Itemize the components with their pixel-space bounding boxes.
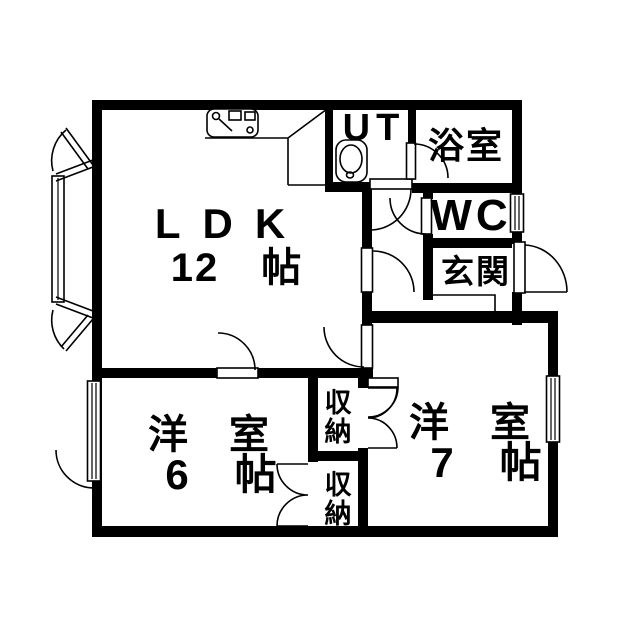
western7-door-leaf	[368, 378, 398, 387]
kitchen-counter	[205, 109, 333, 185]
storage-upper-double-doors	[368, 388, 397, 448]
storage-lower-double-doors	[277, 464, 308, 526]
western7-size-label: 7 帖	[430, 439, 543, 486]
western7-window	[547, 376, 560, 442]
entrance-label: 玄関	[441, 253, 511, 290]
bath-door-leaf	[407, 143, 416, 179]
wall-ldk-bottom-a	[92, 368, 217, 378]
bay-top-door-leaf	[61, 128, 93, 169]
wall-right-upper-a	[512, 100, 522, 195]
svg-text:納: 納	[325, 416, 352, 447]
western6-door-arc	[218, 333, 255, 370]
ut-door-arc	[370, 189, 411, 230]
svg-text:納: 納	[325, 498, 352, 529]
wall-storage-right-a	[358, 378, 368, 388]
ut-label: UT	[343, 107, 406, 149]
ldk-nook-door-leaf	[362, 325, 373, 368]
floor-plan: LDK 12 帖 UT 浴室 WC 玄関 洋 室 6 帖 洋 室 7 帖 収 納…	[0, 0, 640, 639]
entrance-door-leaf	[514, 242, 525, 293]
storage-upper-label: 収 納	[325, 388, 353, 447]
ldk-size-label: 12 帖	[171, 246, 304, 290]
ldk-hall-door-leaf	[362, 248, 373, 292]
wall-storage-left	[308, 378, 318, 462]
ldk-bay-window	[52, 128, 93, 351]
wall-ut-bath	[408, 108, 416, 145]
genkan-step-line	[433, 295, 495, 311]
storage-lower-label: 収 納	[325, 470, 353, 529]
wall-storage-divider	[318, 451, 358, 461]
ldk-nook-door-arc	[324, 327, 364, 367]
wc-window	[511, 194, 524, 232]
wall-hall-left-a	[362, 188, 372, 248]
wall-storage-top	[308, 368, 373, 378]
wall-hall-genkan-bottom	[363, 311, 558, 323]
wall-hall-left-b	[362, 292, 372, 325]
wall-ldk-ut	[325, 108, 333, 185]
entrance-door-arc	[524, 245, 567, 292]
bay-bottom-door-leaf	[61, 315, 93, 351]
wc-label: WC	[430, 191, 511, 240]
wall-top	[92, 100, 522, 110]
bath-label: 浴室	[428, 125, 504, 166]
bay-bottom-door-arc	[52, 310, 64, 349]
floor-plan-svg: LDK 12 帖 UT 浴室 WC 玄関 洋 室 6 帖 洋 室 7 帖 収 納…	[0, 0, 640, 639]
svg-text:収: 収	[325, 388, 353, 418]
ldk-label: LDK	[155, 200, 307, 247]
western6-window	[56, 381, 101, 488]
ldk-hall-door-arc	[373, 251, 414, 292]
western6-door-leaf	[217, 368, 258, 378]
svg-text:収: 収	[325, 470, 353, 500]
wall-storage-right-b	[358, 448, 368, 537]
ut-door-leaf	[370, 179, 412, 189]
wall-right-lower-b	[548, 441, 558, 537]
western6-size-label: 6 帖	[165, 451, 278, 498]
